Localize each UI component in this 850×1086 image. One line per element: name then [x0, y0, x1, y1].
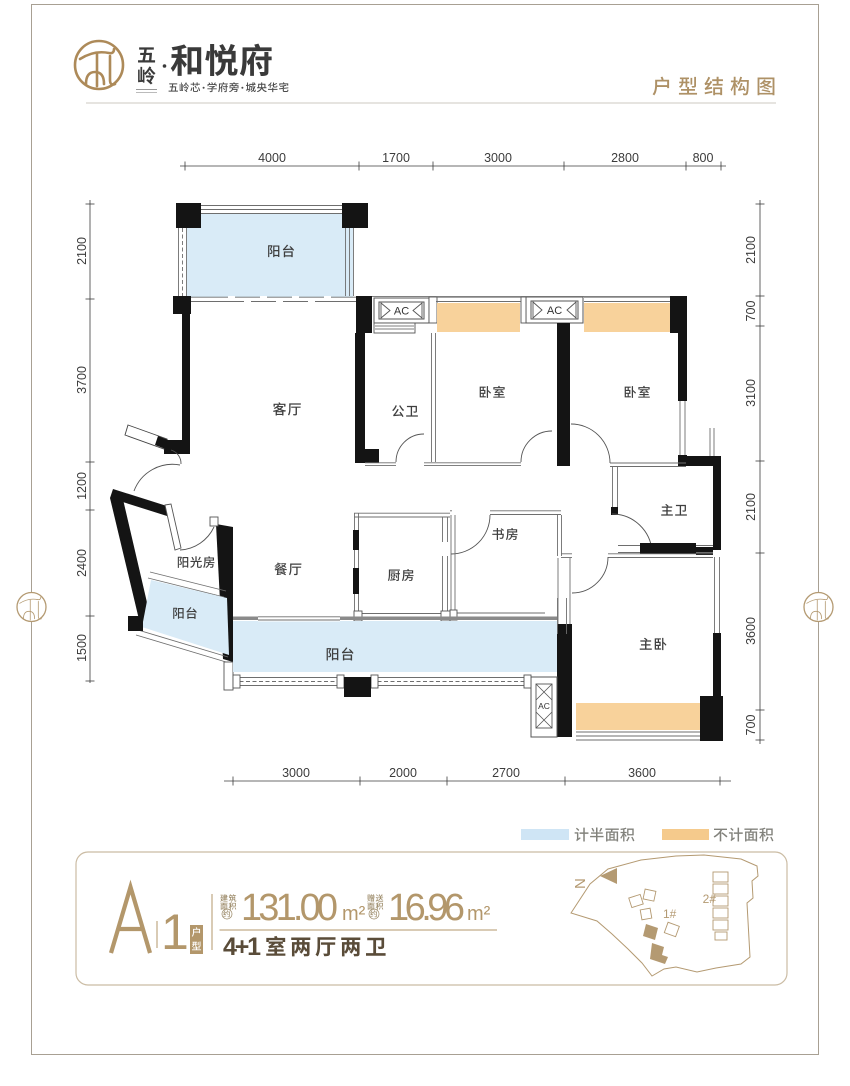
svg-text:131.00: 131.00 — [241, 887, 338, 929]
svg-text:m²: m² — [467, 903, 491, 925]
svg-text:N: N — [572, 878, 589, 889]
svg-text:AC: AC — [547, 305, 562, 317]
svg-text:1500: 1500 — [75, 634, 89, 662]
svg-text:3700: 3700 — [75, 366, 89, 394]
svg-text:2#: 2# — [703, 892, 717, 906]
svg-text:2800: 2800 — [611, 151, 639, 165]
svg-text:AC: AC — [394, 306, 409, 318]
svg-text:3600: 3600 — [628, 766, 656, 780]
svg-text:2100: 2100 — [744, 236, 758, 264]
svg-text:m²: m² — [342, 903, 366, 925]
svg-text:2100: 2100 — [744, 493, 758, 521]
svg-text:AC: AC — [538, 701, 550, 711]
svg-text:2700: 2700 — [492, 766, 520, 780]
svg-text:1#: 1# — [663, 907, 677, 921]
svg-text:1: 1 — [161, 904, 189, 960]
svg-text:3000: 3000 — [484, 151, 512, 165]
svg-text:2000: 2000 — [389, 766, 417, 780]
svg-text:3100: 3100 — [744, 379, 758, 407]
svg-text:3000: 3000 — [282, 766, 310, 780]
svg-text:1200: 1200 — [75, 472, 89, 500]
svg-text:16.96: 16.96 — [388, 887, 465, 929]
svg-text:4+1: 4+1 — [223, 933, 261, 961]
svg-text:2100: 2100 — [75, 237, 89, 265]
svg-text:3600: 3600 — [744, 617, 758, 645]
svg-text:800: 800 — [693, 151, 714, 165]
svg-text:700: 700 — [744, 715, 758, 736]
svg-text:2400: 2400 — [75, 549, 89, 577]
svg-text:1700: 1700 — [382, 151, 410, 165]
svg-text:4000: 4000 — [258, 151, 286, 165]
svg-text:700: 700 — [744, 301, 758, 322]
